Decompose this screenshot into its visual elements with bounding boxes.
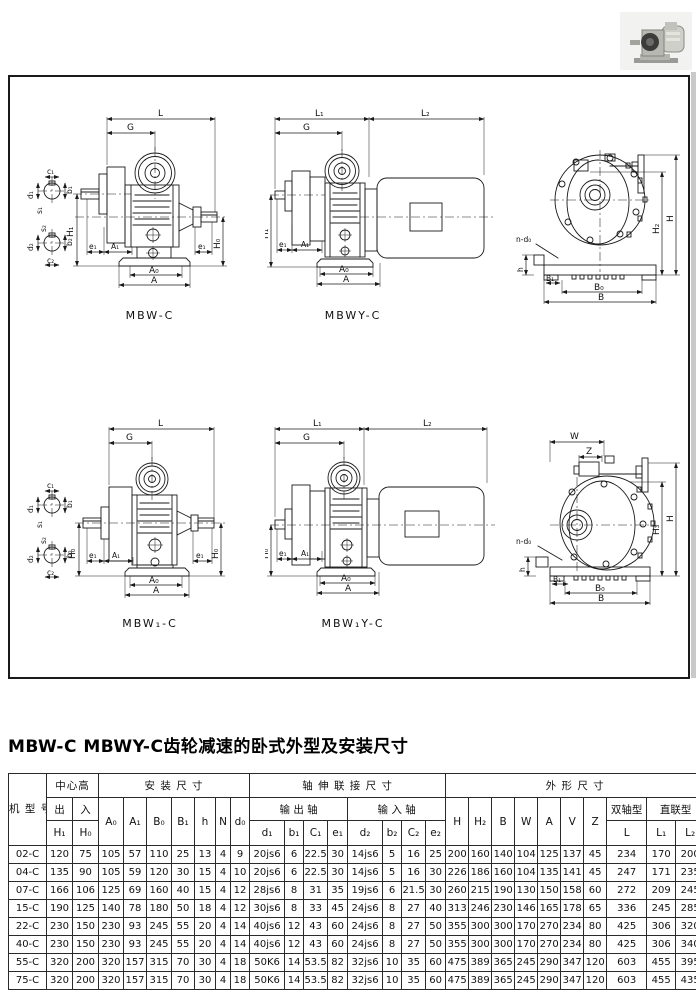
value-cell: 106: [73, 882, 99, 900]
value-cell: 306: [647, 918, 676, 936]
value-cell: 28js6: [250, 882, 285, 900]
value-cell: 603: [607, 954, 647, 972]
value-cell: 365: [492, 954, 515, 972]
value-cell: 21.5: [402, 882, 426, 900]
dim-label-B1: B₁: [553, 575, 561, 584]
value-cell: 230: [492, 900, 515, 918]
table-row: 55-C320200320157315703041850K61453.58232…: [9, 954, 696, 972]
header-A: A: [538, 798, 561, 846]
value-cell: 33: [304, 900, 328, 918]
value-cell: 215: [469, 882, 492, 900]
value-cell: 13: [195, 846, 216, 864]
header-B: B: [492, 798, 515, 846]
value-cell: 300: [469, 918, 492, 936]
header-center-height: 中心高: [47, 774, 99, 798]
dim-label-H0-right: H₀: [211, 548, 221, 559]
value-cell: 14js6: [348, 846, 383, 864]
value-cell: 60: [584, 882, 607, 900]
value-cell: 300: [492, 936, 515, 954]
value-cell: 14: [231, 936, 250, 954]
header-b2: b₂: [383, 821, 402, 846]
value-cell: 10: [383, 954, 402, 972]
value-cell: 120: [584, 972, 607, 990]
value-cell: 395: [676, 954, 696, 972]
value-cell: 140: [492, 846, 515, 864]
value-cell: 59: [124, 864, 147, 882]
value-cell: 20js6: [250, 864, 285, 882]
dim-label-A0: A₀: [149, 266, 159, 276]
value-cell: 8: [285, 882, 304, 900]
value-cell: 6: [383, 882, 402, 900]
value-cell: 246: [469, 900, 492, 918]
value-cell: 120: [147, 864, 172, 882]
header-L: L: [607, 821, 647, 846]
value-cell: 200: [73, 954, 99, 972]
value-cell: 45: [328, 900, 348, 918]
dim-label-L: L: [158, 419, 163, 429]
value-cell: 4: [216, 846, 231, 864]
value-cell: 455: [647, 954, 676, 972]
value-cell: 425: [607, 918, 647, 936]
value-cell: 347: [561, 972, 584, 990]
value-cell: 5: [383, 846, 402, 864]
value-cell: 105: [99, 864, 124, 882]
header-H2: H₂: [469, 798, 492, 846]
value-cell: 125: [538, 846, 561, 864]
catalog-page: L G H₁ H₀ e₁ A₁ e₁ A₀ A c₁ b₁ d₁ s₁ s₂ b…: [0, 0, 696, 1000]
value-cell: 160: [469, 846, 492, 864]
value-cell: 32js6: [348, 954, 383, 972]
value-cell: 347: [561, 954, 584, 972]
header-H: H: [446, 798, 469, 846]
dim-label-A1: A₁: [301, 549, 309, 558]
table-row: 02-C120751055711025134920js6622.53014js6…: [9, 846, 696, 864]
value-cell: 4: [216, 900, 231, 918]
value-cell: 22.5: [304, 846, 328, 864]
mbw1-c-geometry: [38, 427, 225, 598]
value-cell: 43: [304, 918, 328, 936]
model-cell: 40-C: [9, 936, 47, 954]
value-cell: 105: [99, 846, 124, 864]
value-cell: 69: [124, 882, 147, 900]
value-cell: 245: [147, 936, 172, 954]
value-cell: 82: [328, 972, 348, 990]
value-cell: 230: [99, 936, 124, 954]
value-cell: 200: [676, 846, 696, 864]
value-cell: 4: [216, 882, 231, 900]
value-cell: 14js6: [348, 864, 383, 882]
value-cell: 125: [99, 882, 124, 900]
dim-label-H3: H₃: [652, 524, 662, 535]
model-cell: 07-C: [9, 882, 47, 900]
header-V: V: [561, 798, 584, 846]
value-cell: 12: [285, 918, 304, 936]
model-cell: 02-C: [9, 846, 47, 864]
value-cell: 180: [147, 900, 172, 918]
value-cell: 30: [172, 864, 195, 882]
header-d0: d₀: [231, 798, 250, 846]
value-cell: 45: [584, 846, 607, 864]
value-cell: 165: [538, 900, 561, 918]
mbw1-c-drawing: L G H₀ H₀ e₁ A₁ e₁ A₀ A c₁ b₁ d₁ s₁ s₂ b…: [25, 417, 260, 617]
dim-label-H1: H₁: [66, 226, 76, 237]
value-cell: 5: [383, 864, 402, 882]
dim-label-A0: A₀: [149, 576, 159, 586]
value-cell: 40js6: [250, 936, 285, 954]
value-cell: 24js6: [348, 936, 383, 954]
drawings-panel: L G H₁ H₀ e₁ A₁ e₁ A₀ A c₁ b₁ d₁ s₁ s₂ b…: [8, 75, 690, 679]
dimensions-table: 机 型 号 中心高 安 装 尺 寸 轴 伸 联 接 尺 寸 外 形 尺 寸 出 …: [8, 773, 696, 990]
header-model: 机 型 号: [9, 774, 47, 846]
dim-label-L: L: [158, 109, 163, 119]
dim-label-H1: H₁: [265, 228, 271, 239]
value-cell: 27: [402, 900, 426, 918]
value-cell: 150: [73, 936, 99, 954]
value-cell: 50: [426, 936, 446, 954]
value-cell: 190: [47, 900, 73, 918]
scan-edge-artifact: [691, 72, 696, 678]
value-cell: 234: [561, 936, 584, 954]
value-cell: 178: [561, 900, 584, 918]
value-cell: 226: [446, 864, 469, 882]
header-Z: Z: [584, 798, 607, 846]
value-cell: 110: [147, 846, 172, 864]
value-cell: 435: [676, 972, 696, 990]
value-cell: 4: [216, 954, 231, 972]
value-cell: 171: [647, 864, 676, 882]
value-cell: 200: [446, 846, 469, 864]
value-cell: 80: [584, 918, 607, 936]
header-H0: H₀: [73, 821, 99, 846]
value-cell: 170: [515, 936, 538, 954]
value-cell: 78: [124, 900, 147, 918]
dim-label-H0: H₀: [265, 548, 271, 559]
value-cell: 104: [515, 846, 538, 864]
dim-label-A: A: [345, 584, 352, 594]
value-cell: 53.5: [304, 972, 328, 990]
value-cell: 60: [328, 918, 348, 936]
value-cell: 70: [172, 954, 195, 972]
table-body: 02-C120751055711025134920js6622.53014js6…: [9, 846, 696, 990]
value-cell: 234: [561, 918, 584, 936]
value-cell: 16: [402, 846, 426, 864]
dim-label-A: A: [343, 275, 350, 285]
value-cell: 40: [172, 882, 195, 900]
value-cell: 186: [469, 864, 492, 882]
header-H1: H₁: [47, 821, 73, 846]
value-cell: 27: [402, 936, 426, 954]
value-cell: 160: [147, 882, 172, 900]
dim-label-b1: b₁: [65, 500, 74, 508]
dim-label-n-d0: n-d₀: [516, 235, 531, 244]
value-cell: 125: [73, 900, 99, 918]
header-direct-type: 直联型: [647, 798, 696, 821]
dim-label-n-d0: n-d₀: [516, 537, 531, 546]
value-cell: 60: [328, 936, 348, 954]
dim-label-d2: d₂: [26, 243, 35, 251]
value-cell: 43: [304, 936, 328, 954]
value-cell: 270: [538, 918, 561, 936]
dim-label-B0: B₀: [594, 283, 604, 293]
value-cell: 90: [73, 864, 99, 882]
value-cell: 12: [231, 900, 250, 918]
value-cell: 245: [147, 918, 172, 936]
caption-mbwy-c: MBWY-C: [268, 309, 438, 322]
dim-label-L2: L₂: [421, 109, 430, 119]
value-cell: 603: [607, 972, 647, 990]
value-cell: 55: [172, 918, 195, 936]
value-cell: 12: [285, 936, 304, 954]
table-row: 75-C320200320157315703041850K61453.58232…: [9, 972, 696, 990]
value-cell: 4: [216, 972, 231, 990]
dim-label-A1: A₁: [111, 242, 119, 251]
value-cell: 320: [676, 918, 696, 936]
value-cell: 157: [124, 972, 147, 990]
value-cell: 12: [231, 882, 250, 900]
value-cell: 475: [446, 954, 469, 972]
value-cell: 160: [492, 864, 515, 882]
value-cell: 245: [515, 954, 538, 972]
value-cell: 50: [172, 900, 195, 918]
dim-label-L1: L₁: [315, 109, 324, 119]
value-cell: 120: [47, 846, 73, 864]
value-cell: 120: [584, 954, 607, 972]
header-N: N: [216, 798, 231, 846]
end-view-bottom-drawing: W Z n-d₀ h B₁ B₀ B H₃ H: [510, 402, 690, 632]
value-cell: 14: [231, 918, 250, 936]
value-cell: 320: [47, 954, 73, 972]
dim-label-L2: L₂: [423, 419, 432, 429]
value-cell: 290: [538, 972, 561, 990]
dim-label-A1: A₁: [112, 551, 120, 560]
value-cell: 30: [195, 972, 216, 990]
caption-mbw-c: MBW-C: [65, 309, 235, 322]
value-cell: 40: [426, 900, 446, 918]
dim-label-c2: c₂: [47, 568, 54, 577]
value-cell: 53.5: [304, 954, 328, 972]
header-d1: d₁: [250, 821, 285, 846]
value-cell: 230: [47, 918, 73, 936]
value-cell: 389: [469, 972, 492, 990]
value-cell: 245: [515, 972, 538, 990]
model-cell: 04-C: [9, 864, 47, 882]
dim-label-G: G: [303, 123, 310, 133]
value-cell: 30: [328, 846, 348, 864]
value-cell: 4: [216, 936, 231, 954]
dim-label-H: H: [666, 215, 676, 222]
value-cell: 336: [607, 900, 647, 918]
dim-label-c1: c₁: [47, 481, 54, 490]
mbw-c-geometry: [38, 117, 227, 288]
value-cell: 32js6: [348, 972, 383, 990]
value-cell: 150: [73, 918, 99, 936]
value-cell: 235: [676, 864, 696, 882]
value-cell: 190: [492, 882, 515, 900]
value-cell: 320: [99, 972, 124, 990]
value-cell: 25: [172, 846, 195, 864]
photo-motor-shapes: [630, 22, 684, 63]
dim-label-c2: c₂: [47, 256, 54, 265]
value-cell: 82: [328, 954, 348, 972]
dim-label-B: B: [598, 594, 604, 604]
dim-label-G: G: [303, 433, 310, 443]
value-cell: 135: [538, 864, 561, 882]
value-cell: 270: [538, 936, 561, 954]
header-e1: e₁: [328, 821, 348, 846]
model-cell: 22-C: [9, 918, 47, 936]
header-B0: B₀: [147, 798, 172, 846]
dim-label-e1b: e₁: [196, 551, 204, 560]
value-cell: 35: [402, 972, 426, 990]
dim-label-L1: L₁: [313, 419, 322, 429]
model-cell: 15-C: [9, 900, 47, 918]
value-cell: 247: [607, 864, 647, 882]
value-cell: 75: [73, 846, 99, 864]
value-cell: 35: [328, 882, 348, 900]
value-cell: 137: [561, 846, 584, 864]
value-cell: 4: [216, 918, 231, 936]
dim-label-e1: e₁: [279, 240, 287, 249]
value-cell: 93: [124, 918, 147, 936]
caption-mbw1y-c: MBW₁Y-C: [268, 617, 438, 630]
value-cell: 50: [426, 918, 446, 936]
value-cell: 16: [402, 864, 426, 882]
value-cell: 65: [584, 900, 607, 918]
value-cell: 389: [469, 954, 492, 972]
dim-label-s1: s₁: [35, 521, 44, 528]
header-A1: A₁: [124, 798, 147, 846]
value-cell: 70: [172, 972, 195, 990]
value-cell: 200: [73, 972, 99, 990]
value-cell: 22.5: [304, 864, 328, 882]
value-cell: 55: [172, 936, 195, 954]
value-cell: 141: [561, 864, 584, 882]
value-cell: 260: [446, 882, 469, 900]
value-cell: 30: [195, 954, 216, 972]
value-cell: 475: [446, 972, 469, 990]
value-cell: 9: [231, 846, 250, 864]
mbwy-c-geometry: [267, 117, 495, 287]
value-cell: 8: [383, 918, 402, 936]
value-cell: 135: [47, 864, 73, 882]
dim-label-Z: Z: [586, 447, 592, 457]
value-cell: 315: [147, 954, 172, 972]
value-cell: 18: [231, 954, 250, 972]
dim-label-G: G: [126, 433, 133, 443]
value-cell: 245: [647, 900, 676, 918]
value-cell: 355: [446, 936, 469, 954]
value-cell: 150: [538, 882, 561, 900]
value-cell: 320: [47, 972, 73, 990]
header-L1: L₁: [647, 821, 676, 846]
table-row: 15-C19012514078180501841230js68334524js6…: [9, 900, 696, 918]
value-cell: 209: [647, 882, 676, 900]
dim-label-b2: b₂: [65, 238, 74, 246]
value-cell: 365: [492, 972, 515, 990]
value-cell: 14: [285, 972, 304, 990]
value-cell: 313: [446, 900, 469, 918]
value-cell: 10: [231, 864, 250, 882]
value-cell: 24js6: [348, 918, 383, 936]
header-e2: e₂: [426, 821, 446, 846]
value-cell: 140: [99, 900, 124, 918]
dim-label-A: A: [153, 586, 160, 596]
value-cell: 285: [676, 900, 696, 918]
header-b1: b₁: [285, 821, 304, 846]
value-cell: 8: [383, 900, 402, 918]
table-row: 07-C16610612569160401541228js68313519js6…: [9, 882, 696, 900]
page-title: MBW-C MBWY-C齿轮减速的卧式外型及安装尺寸: [8, 732, 688, 757]
dim-label-h: h: [518, 567, 527, 572]
header-shaft-dims: 轴 伸 联 接 尺 寸: [250, 774, 446, 798]
header-A0: A₀: [99, 798, 124, 846]
value-cell: 20js6: [250, 846, 285, 864]
header-d2: d₂: [348, 821, 383, 846]
dim-label-b2: b₂: [65, 550, 74, 558]
dim-label-B1: B₁: [546, 274, 554, 283]
dim-label-H0: H₀: [213, 238, 223, 249]
value-cell: 24js6: [348, 900, 383, 918]
dim-label-c1: c₁: [47, 167, 54, 176]
mbw-c-drawing: L G H₁ H₀ e₁ A₁ e₁ A₀ A c₁ b₁ d₁ s₁ s₂ b…: [25, 107, 260, 307]
table-row: 22-C23015023093245552041440js612436024js…: [9, 918, 696, 936]
dim-label-b1: b₁: [65, 186, 74, 194]
table-row: 40-C23015023093245552041440js612436024js…: [9, 936, 696, 954]
value-cell: 6: [285, 864, 304, 882]
header-input-shaft: 输 入 轴: [348, 798, 446, 821]
header-B1: B₁: [172, 798, 195, 846]
header-L2: L₂: [676, 821, 696, 846]
value-cell: 320: [99, 954, 124, 972]
product-photo: [620, 12, 692, 70]
header-double-shaft: 双轴型: [607, 798, 647, 821]
value-cell: 245: [676, 882, 696, 900]
value-cell: 157: [124, 954, 147, 972]
value-cell: 306: [647, 936, 676, 954]
header-h: h: [195, 798, 216, 846]
value-cell: 234: [607, 846, 647, 864]
value-cell: 272: [607, 882, 647, 900]
dim-label-H2: H₂: [652, 223, 662, 234]
dim-label-s1: s₁: [35, 207, 44, 214]
value-cell: 425: [607, 936, 647, 954]
header-install-dims: 安 装 尺 寸: [99, 774, 250, 798]
value-cell: 20: [195, 918, 216, 936]
value-cell: 166: [47, 882, 73, 900]
dim-label-d1: d₁: [26, 505, 35, 513]
value-cell: 15: [195, 864, 216, 882]
header-C2: C₂: [402, 821, 426, 846]
value-cell: 35: [402, 954, 426, 972]
value-cell: 14: [285, 954, 304, 972]
dim-label-W: W: [570, 432, 579, 442]
value-cell: 4: [216, 864, 231, 882]
dim-label-H: H: [666, 515, 676, 522]
dim-label-A0: A₀: [341, 574, 351, 584]
mbwy-c-drawing: L₁ L₂ G H₁ e₁ A₁ A₀ A: [265, 107, 530, 307]
header-in: 入: [73, 798, 99, 821]
mbw1y-c-geometry: [267, 427, 495, 596]
dim-label-A: A: [151, 276, 158, 286]
dim-label-e1b: e₁: [198, 242, 206, 251]
value-cell: 20: [195, 936, 216, 954]
table-row: 04-C1359010559120301541020js6622.53014js…: [9, 864, 696, 882]
value-cell: 300: [492, 918, 515, 936]
value-cell: 340: [676, 936, 696, 954]
value-cell: 57: [124, 846, 147, 864]
value-cell: 130: [515, 882, 538, 900]
caption-mbw1-c: MBW₁-C: [65, 617, 235, 630]
